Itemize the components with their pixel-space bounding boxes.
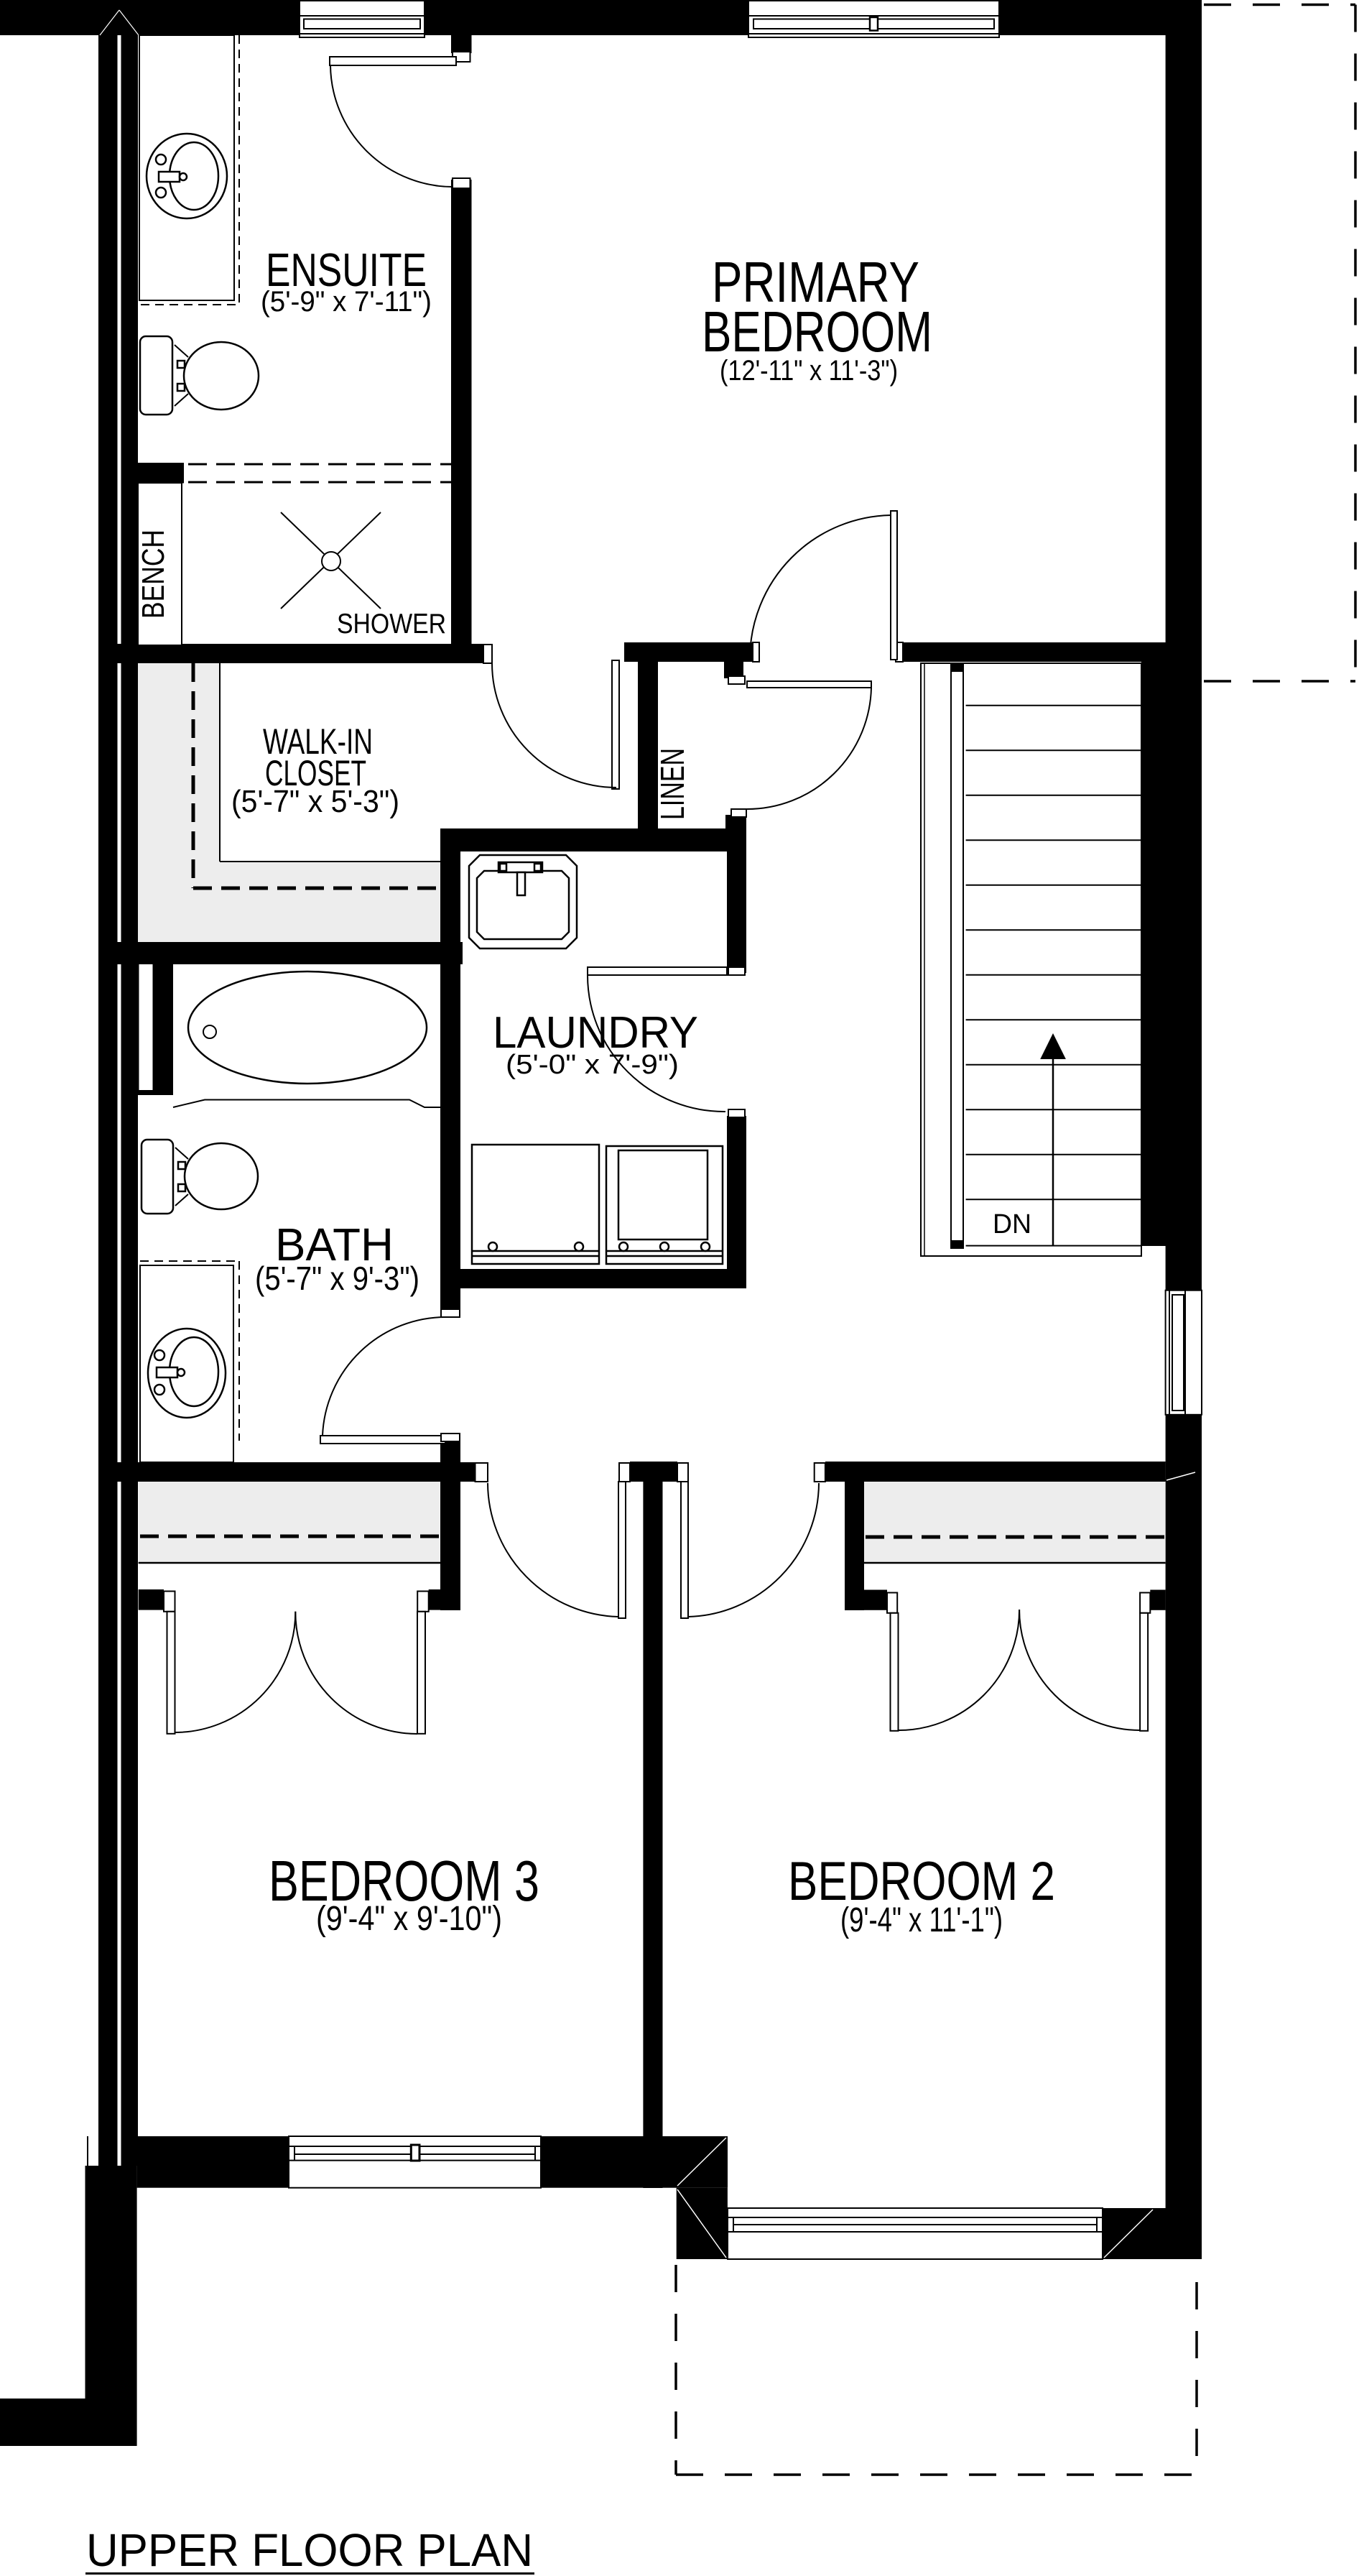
svg-text:(9'-4" x 11'-1"): (9'-4" x 11'-1") (840, 1901, 1003, 1939)
svg-text:BEDROOM: BEDROOM (702, 300, 932, 364)
svg-text:LINEN: LINEN (654, 748, 691, 820)
svg-text:SHOWER: SHOWER (337, 609, 446, 640)
svg-text:BENCH: BENCH (136, 530, 171, 619)
svg-text:DN: DN (993, 1209, 1031, 1239)
svg-text:(5'-7" x 9'-3"): (5'-7" x 9'-3") (255, 1260, 419, 1297)
svg-text:(5'-0" x 7'-9"): (5'-0" x 7'-9") (506, 1050, 679, 1080)
svg-text:(9'-4" x 9'-10"): (9'-4" x 9'-10") (316, 1900, 502, 1938)
svg-text:(12'-11" x 11'-3"): (12'-11" x 11'-3") (720, 355, 898, 387)
svg-text:(5'-9" x 7'-11"): (5'-9" x 7'-11") (261, 286, 432, 318)
svg-text:UPPER FLOOR PLAN: UPPER FLOOR PLAN (86, 2524, 533, 2576)
svg-text:(5'-7" x 5'-3"): (5'-7" x 5'-3") (231, 784, 399, 819)
